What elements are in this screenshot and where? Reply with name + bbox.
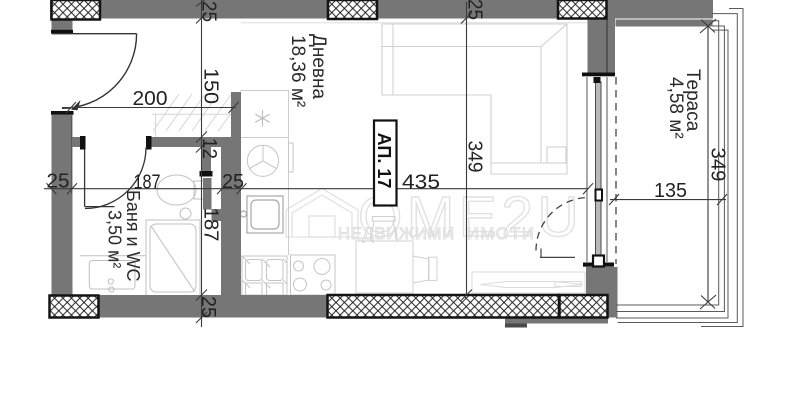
svg-text:25: 25 [198, 1, 221, 22]
svg-text:200: 200 [133, 87, 168, 110]
svg-text:Баня и WC: Баня и WC [123, 190, 143, 282]
svg-text:25: 25 [464, 0, 487, 20]
svg-text:18,36 м²: 18,36 м² [287, 35, 308, 107]
svg-text:150: 150 [200, 68, 223, 104]
svg-text:25: 25 [47, 170, 70, 193]
svg-text:25: 25 [222, 170, 244, 193]
svg-text:349: 349 [707, 148, 730, 182]
svg-text:4,58 м²: 4,58 м² [665, 77, 686, 139]
svg-text:3,50 м²: 3,50 м² [105, 210, 125, 268]
svg-text:349: 349 [464, 141, 487, 173]
svg-text:АП. 17: АП. 17 [374, 133, 394, 189]
svg-text:25: 25 [197, 296, 220, 318]
svg-text:435: 435 [402, 171, 440, 194]
svg-text:Дневна: Дневна [308, 34, 329, 100]
svg-text:12: 12 [198, 138, 221, 159]
svg-text:ИМОТИ: ИМОТИ [467, 225, 535, 243]
svg-text:135: 135 [654, 179, 687, 202]
svg-text:187: 187 [200, 208, 223, 242]
